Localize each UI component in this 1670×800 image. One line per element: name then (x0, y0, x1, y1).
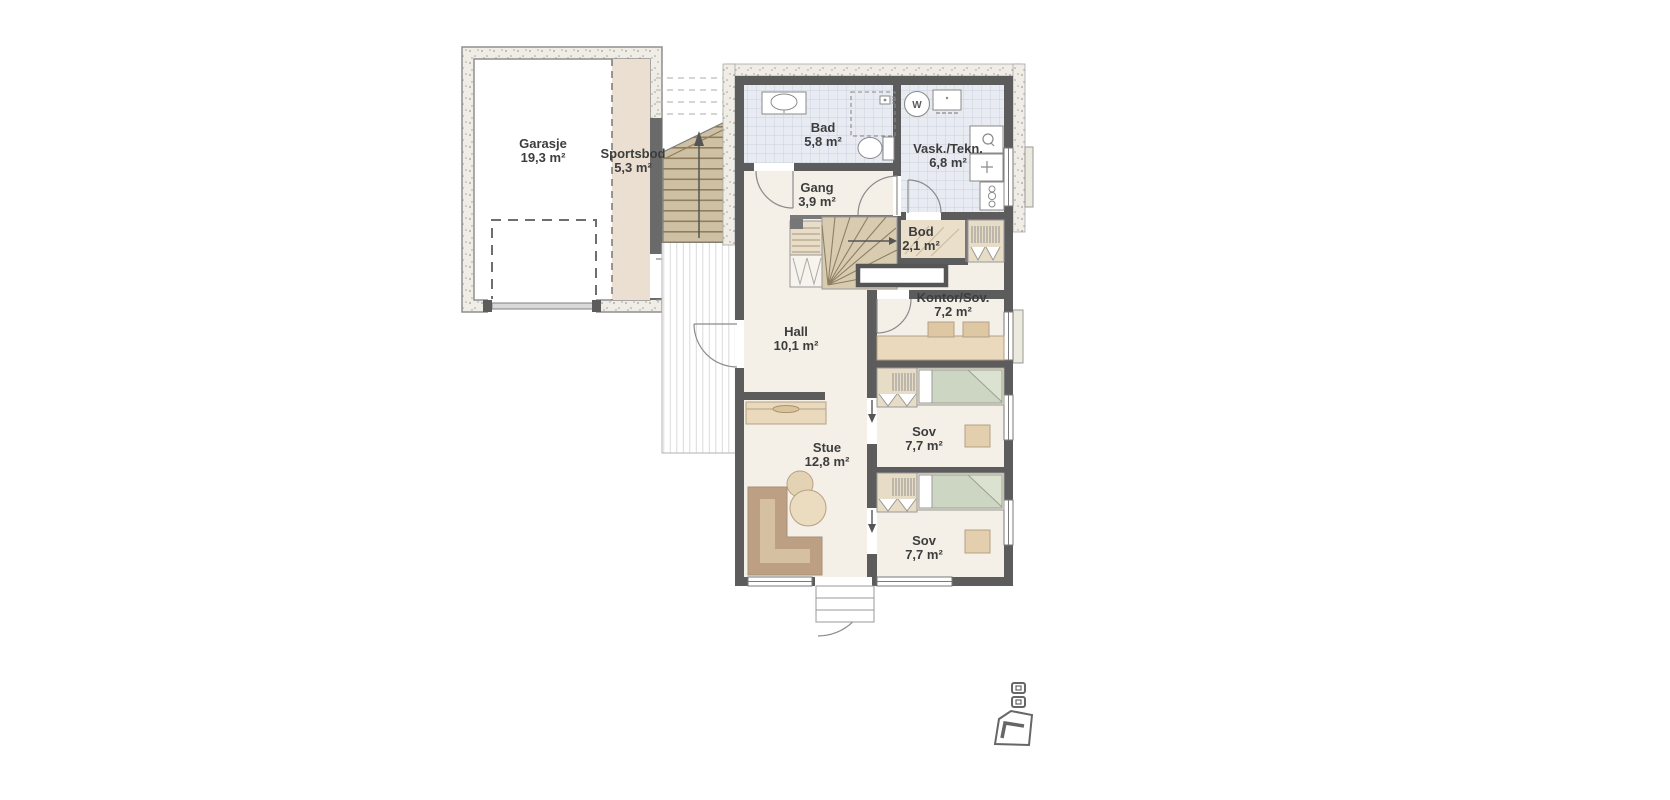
room-name: Sov (912, 533, 937, 548)
exterior-wall-hatch-left (723, 64, 735, 245)
room-area: 10,1 m² (774, 338, 819, 353)
entry-steps (816, 586, 874, 622)
sportsbod-floor (612, 59, 650, 300)
bedside-desk (965, 425, 990, 447)
room-name: Kontor/Sov. (917, 290, 990, 305)
garage-block (462, 47, 696, 313)
room-label-gang: Gang 3,9 m² (798, 180, 836, 209)
garage-door (492, 303, 594, 309)
room-area: 2,1 m² (902, 238, 940, 253)
toilet-icon (858, 137, 894, 160)
deck-walkway (662, 243, 735, 453)
wall-hall-stue (744, 392, 825, 400)
room-area: 12,8 m² (805, 454, 850, 469)
deck-boards (662, 243, 735, 453)
room-area: 19,3 m² (521, 150, 566, 165)
floorplan-canvas: W (0, 0, 1670, 800)
exterior-window-sill (1013, 310, 1023, 363)
room-name: Gang (800, 180, 833, 195)
room-area: 6,8 m² (929, 155, 967, 170)
stair-railing (858, 266, 946, 285)
drain-unit-icon (980, 182, 1004, 210)
window-sov2 (1004, 500, 1013, 545)
room-name: Vask./Tekn. (913, 141, 983, 156)
room-name: Garasje (519, 136, 567, 151)
sportsbod-door-opening (650, 254, 662, 298)
duct-shaft (790, 219, 803, 229)
room-area: 3,9 m² (798, 194, 836, 209)
room-name: Bad (811, 120, 836, 135)
exterior-wall-hatch-top (727, 64, 1021, 76)
washing-machine-icon: W (905, 92, 930, 117)
room-area: 7,7 m² (905, 547, 943, 562)
entry-door-opening (815, 577, 872, 586)
pillow (919, 370, 932, 403)
tech-unit-icon (970, 154, 1003, 181)
pillow (919, 475, 932, 508)
window-sov2-south (877, 577, 952, 586)
floorplan-drawing: W (0, 0, 1670, 800)
counter-icon (933, 90, 961, 113)
sink-icon (762, 92, 806, 114)
overhang-dashed-lines (656, 78, 733, 114)
room-name: Stue (813, 440, 841, 455)
wall-kontor-sov1 (867, 360, 1004, 368)
room-name: Bod (908, 224, 933, 239)
bad-door-opening (754, 163, 794, 171)
vask-door-opening (906, 212, 941, 220)
sideboard (746, 402, 826, 424)
exterior-wall-hatch-right (1013, 64, 1025, 232)
chair (928, 322, 954, 337)
window-vask (1004, 148, 1013, 206)
desk (877, 336, 1004, 360)
exterior-window-sill (1025, 147, 1033, 207)
hall-wardrobe (965, 220, 1004, 262)
washing-machine-label: W (912, 100, 922, 111)
window-stue (748, 577, 812, 586)
sideboard-handle (773, 406, 799, 413)
room-area: 7,7 m² (905, 438, 943, 453)
room-label-garasje: Garasje 19,3 m² (519, 136, 567, 165)
wall-stub (483, 300, 492, 312)
room-area: 5,3 m² (614, 160, 652, 175)
wall-stub (592, 300, 601, 312)
room-name: Sportsbod (601, 146, 666, 161)
exterior-stairs (663, 118, 733, 243)
room-name: Sov (912, 424, 937, 439)
window-kontor (1004, 312, 1013, 360)
room-area: 5,8 m² (804, 134, 842, 149)
round-table (790, 490, 826, 526)
deck-door-opening (735, 320, 744, 368)
bedside-desk (965, 530, 990, 553)
room-name: Hall (784, 324, 808, 339)
kontor-door-opening (877, 290, 909, 299)
chair (963, 322, 989, 337)
builder-logo-icon (995, 683, 1032, 745)
room-area: 7,2 m² (934, 304, 972, 319)
window-sov1 (1004, 395, 1013, 440)
